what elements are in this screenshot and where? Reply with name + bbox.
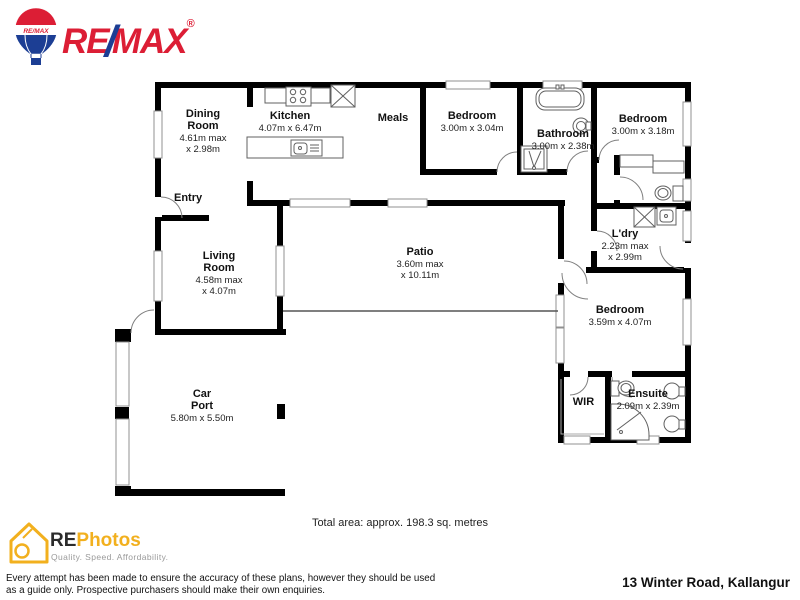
washing-machine-icon [634,207,655,227]
pantry-icon [331,85,355,107]
rephotos-wordmark: REPhotos [50,530,141,552]
stove-icon [286,87,311,106]
bathtub-icon [536,85,584,110]
floorplan-page: RE/MAX RE/MAX® [0,0,800,600]
robe-icon [620,155,684,173]
room-label-bedroom-2: Bedroom 3.00m x 3.18m [583,113,703,137]
room-label-laundry: L'dry 2.23m max x 2.99m [574,228,676,263]
room-label-living: Living Room 4.58m max x 4.07m [168,250,270,297]
floorplan-drawing [0,0,800,600]
rephotos-tagline: Quality. Speed. Affordability. [51,552,168,562]
property-address: 13 Winter Road, Kallangur [622,575,790,590]
room-label-kitchen: Kitchen 4.07m x 6.47m [230,110,350,134]
toilet-icon [655,186,683,201]
room-label-carport: Car Port 5.80m x 5.50m [150,388,254,424]
room-label-bedroom-main: Bedroom 3.59m x 4.07m [558,304,682,328]
rephotos-logo: REPhotos Quality. Speed. Affordability. [8,520,238,570]
rephotos-house-icon [8,520,52,566]
room-label-ensuite: Ensuite 2.09m x 2.39m [597,388,699,412]
room-label-patio: Patio 3.60m max x 10.11m [368,246,472,281]
total-area-text: Total area: approx. 198.3 sq. metres [250,517,550,529]
room-label-entry: Entry [174,192,234,204]
laundry-tub-icon [657,207,676,225]
sink-icon [291,140,322,156]
disclaimer-text: Every attempt has been made to ensure th… [6,573,466,596]
